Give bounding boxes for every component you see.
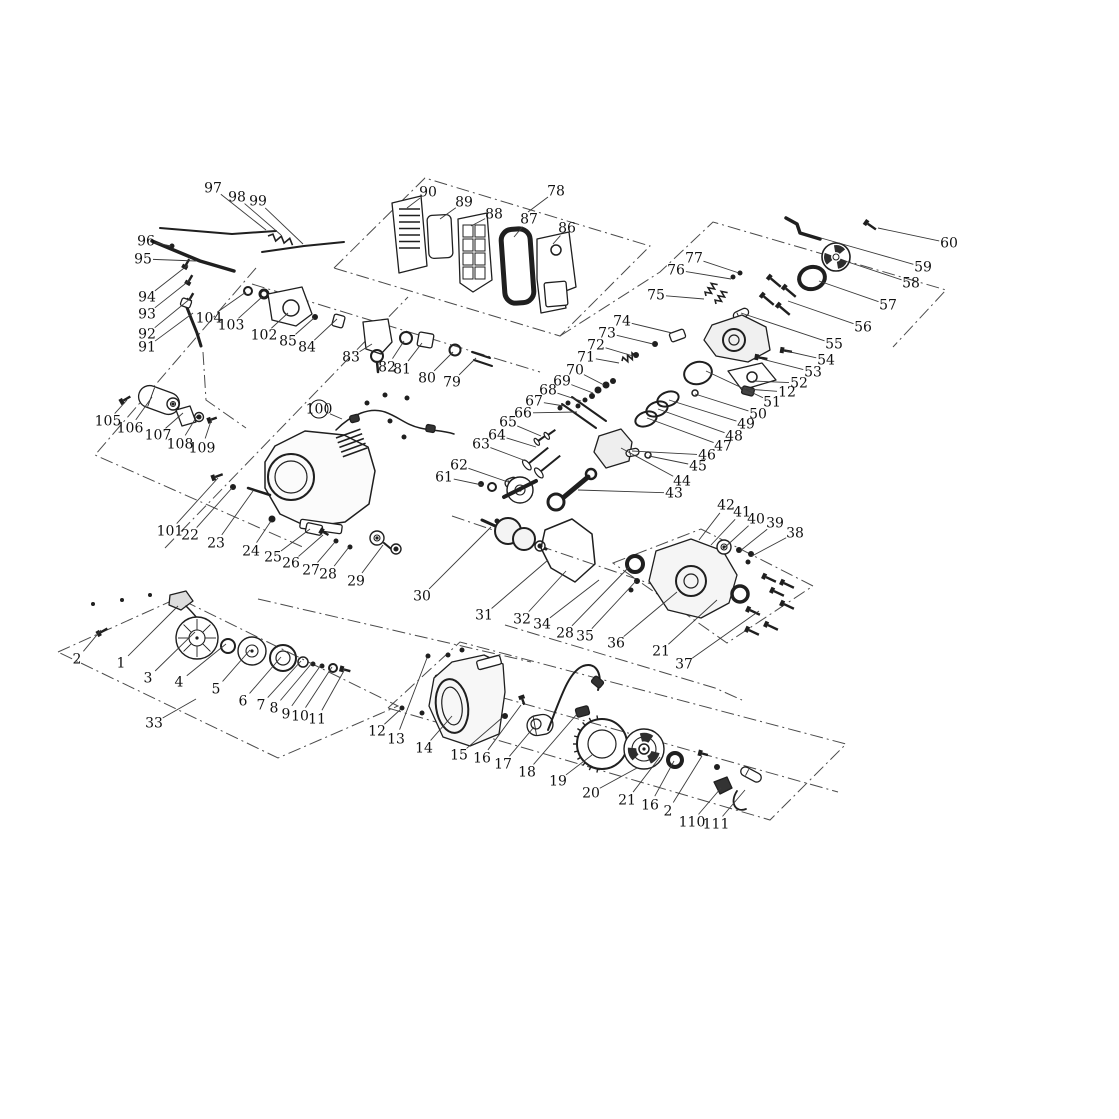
part-number: 2 — [73, 652, 82, 668]
retainer — [595, 387, 602, 394]
part-number: 62 — [450, 458, 468, 474]
part-number: 1 — [117, 656, 126, 672]
part-number: 24 — [242, 544, 260, 560]
part-number: 55 — [825, 337, 843, 353]
part-number: 97 — [204, 181, 222, 197]
part-number: 59 — [914, 260, 932, 276]
part-number: 109 — [189, 441, 216, 457]
part-number: 4 — [175, 675, 184, 691]
part-number: 101 — [157, 524, 184, 540]
part-number: 92 — [138, 327, 156, 343]
part-number: 33 — [145, 716, 163, 732]
part-number: 74 — [613, 314, 631, 330]
part-number: 16 — [641, 798, 659, 814]
part-number: 98 — [228, 190, 246, 206]
part-number: 7 — [257, 698, 266, 714]
part-number: 3 — [144, 671, 153, 687]
woodruff-key — [495, 519, 500, 524]
base-box — [544, 281, 568, 307]
part-number: 13 — [387, 732, 405, 748]
part-number: 35 — [576, 629, 594, 645]
part-number: 104 — [196, 311, 223, 327]
part-number: 21 — [652, 644, 670, 660]
starter-pulley — [822, 243, 850, 271]
part-number: 6 — [239, 694, 248, 710]
part-number: 14 — [415, 741, 433, 757]
part-number: 25 — [264, 550, 282, 566]
part-number: 82 — [378, 360, 396, 376]
terminal — [388, 419, 393, 424]
part-number: 93 — [138, 307, 156, 323]
part-number: 90 — [419, 185, 437, 201]
terminal — [402, 435, 407, 440]
crank-gear — [535, 541, 545, 551]
part-number: 79 — [443, 375, 461, 391]
part-number: 23 — [207, 536, 225, 552]
drain-nut — [269, 516, 276, 523]
diagram-page: 1234567891011331213141516171819202116211… — [0, 0, 1119, 1119]
friction-plate — [238, 637, 266, 665]
terminal — [365, 401, 370, 406]
part-number: 12 — [368, 724, 386, 740]
bolt — [405, 396, 410, 401]
oil-slinger — [391, 544, 401, 554]
part-number: 2 — [664, 804, 673, 820]
crank-web — [513, 528, 535, 550]
governor-shaft — [370, 531, 384, 545]
part-number: 34 — [533, 617, 551, 633]
stud — [746, 560, 751, 565]
part-number: 22 — [181, 528, 199, 544]
part-number: 88 — [485, 207, 503, 223]
part-number: 56 — [854, 320, 872, 336]
bolt — [383, 393, 388, 398]
part-number: 41 — [733, 505, 751, 521]
pinion-gear — [195, 413, 204, 422]
part-number: 75 — [647, 288, 665, 304]
part-number: 11 — [308, 712, 326, 728]
part-number: 96 — [137, 234, 155, 250]
part-number: 21 — [618, 793, 636, 809]
governor-gear — [717, 540, 731, 554]
part-number: 44 — [673, 474, 691, 490]
connector — [425, 424, 435, 432]
recoil-reel — [176, 617, 218, 659]
connector — [349, 414, 360, 423]
part-number: 8 — [270, 701, 279, 717]
spring-retainer — [633, 352, 639, 358]
keeper — [583, 398, 588, 403]
part-number: 37 — [675, 657, 693, 673]
part-number: 58 — [902, 276, 920, 292]
part-number: 20 — [582, 786, 600, 802]
part-number: 38 — [786, 526, 804, 542]
housing-slots — [399, 209, 420, 248]
part-number: 83 — [342, 350, 360, 366]
exploded-parts-diagram: 1234567891011331213141516171819202116211… — [0, 0, 1119, 1119]
part-number: 30 — [413, 589, 431, 605]
part-number: 57 — [879, 298, 897, 314]
bolt — [91, 602, 95, 606]
retainer — [610, 378, 616, 384]
background — [0, 0, 1119, 1119]
bolt — [426, 654, 431, 659]
nut — [748, 551, 754, 557]
part-number: 102 — [251, 328, 278, 344]
part-number: 60 — [940, 236, 958, 252]
filter-element — [427, 214, 453, 258]
washer — [714, 764, 720, 770]
part-number: 18 — [518, 765, 536, 781]
part-number: 17 — [494, 757, 512, 773]
part-number: 36 — [607, 636, 625, 652]
bolt — [420, 711, 425, 716]
bolt — [148, 593, 152, 597]
bolt — [120, 598, 124, 602]
part-number: 89 — [455, 195, 473, 211]
spring-seat — [566, 401, 571, 406]
part-number: 95 — [134, 252, 152, 268]
part-number: 29 — [347, 574, 365, 590]
part-number: 84 — [298, 340, 316, 356]
spring-seat — [558, 406, 563, 411]
part-number: 77 — [685, 251, 703, 267]
part-number: 111 — [703, 817, 730, 833]
part-number: 85 — [279, 334, 297, 350]
part-number: 9 — [282, 707, 291, 723]
retainer — [589, 393, 595, 399]
part-number: 99 — [249, 194, 267, 210]
part-number: 86 — [558, 221, 576, 237]
part-number: 28 — [556, 626, 574, 642]
part-number: 39 — [766, 516, 784, 532]
part-number: 15 — [450, 748, 468, 764]
keeper — [576, 404, 581, 409]
part-number: 110 — [679, 815, 706, 831]
washer — [348, 545, 353, 550]
carb-spacer — [332, 314, 346, 328]
part-number: 32 — [513, 612, 531, 628]
part-number: 87 — [520, 212, 538, 228]
part-number: 27 — [302, 563, 320, 579]
part-number: 5 — [212, 682, 221, 698]
part-number: 31 — [475, 608, 493, 624]
part-number: 16 — [473, 751, 491, 767]
part-number: 80 — [418, 371, 436, 387]
washer — [634, 578, 640, 584]
bolt — [460, 648, 465, 653]
starter-gear — [167, 398, 179, 410]
part-number: 26 — [282, 556, 300, 572]
nut — [502, 713, 508, 719]
part-number: 42 — [717, 498, 735, 514]
part-number: 28 — [319, 567, 337, 583]
part-number: 76 — [667, 263, 685, 279]
bolt — [446, 653, 451, 658]
part-number: 106 — [117, 421, 144, 437]
part-number: 19 — [549, 774, 567, 790]
pin — [731, 275, 736, 280]
part-number: 78 — [547, 184, 565, 200]
part-number: 94 — [138, 290, 156, 306]
part-number: 100 — [306, 402, 333, 418]
part-number: 54 — [817, 353, 835, 369]
part-number: 10 — [291, 709, 309, 725]
